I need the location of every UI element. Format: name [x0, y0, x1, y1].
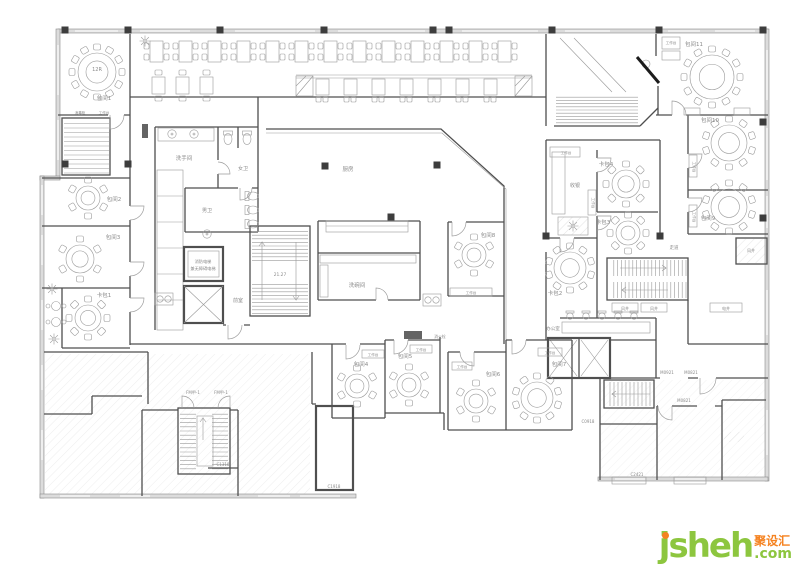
column — [322, 163, 329, 170]
chair — [454, 241, 463, 250]
chair — [554, 401, 562, 410]
room-label: 工作台 — [99, 110, 110, 115]
chair — [70, 300, 79, 309]
room-label: C0918 — [582, 419, 595, 424]
room-label: 工作台 — [692, 212, 697, 223]
chair — [69, 69, 75, 76]
chair — [97, 327, 106, 336]
column — [760, 215, 767, 222]
column — [430, 27, 437, 34]
chair — [251, 43, 256, 49]
chair — [367, 43, 372, 49]
chair — [463, 43, 468, 49]
booth-table — [344, 79, 357, 95]
round-table — [681, 46, 743, 108]
chair — [68, 184, 77, 193]
room-label: 前室 — [233, 297, 243, 304]
room-label: 包间2 — [107, 195, 122, 203]
basin — [190, 130, 198, 138]
stair-treads — [64, 124, 109, 174]
chair — [338, 54, 343, 60]
room-label: 12R — [92, 67, 102, 73]
room-label: 走道 — [670, 244, 679, 251]
chair — [739, 183, 748, 192]
chair — [485, 259, 494, 268]
room-label: FM甲-1 — [214, 390, 228, 395]
booth-table — [237, 41, 250, 62]
chair — [567, 287, 574, 293]
room-label: M0921 — [660, 370, 674, 375]
chair — [512, 43, 517, 49]
chair — [428, 97, 433, 102]
room-label: 包间1 — [97, 94, 112, 102]
chair — [512, 401, 520, 410]
chair — [709, 46, 716, 52]
chair — [739, 158, 748, 167]
chair — [519, 376, 528, 385]
chair — [435, 97, 440, 102]
chair — [389, 371, 398, 380]
chair — [347, 54, 352, 60]
chair — [485, 241, 494, 250]
plant-icon — [47, 284, 58, 295]
room-label: 工作台 — [368, 352, 379, 357]
chair — [748, 195, 756, 204]
chair — [636, 241, 645, 250]
chair — [732, 86, 741, 95]
chair — [611, 216, 620, 225]
room-label: 兼无障碍电梯 — [190, 265, 215, 272]
chair — [702, 146, 710, 155]
chair — [456, 97, 461, 102]
room-label: 消毒柜 — [75, 110, 86, 115]
basin — [203, 230, 211, 238]
chair — [400, 97, 405, 102]
chair — [344, 97, 349, 102]
room-label: 包间11 — [685, 40, 703, 48]
chair — [492, 43, 497, 49]
chair — [748, 210, 756, 219]
room-label: C1318 — [217, 462, 230, 467]
chair — [420, 371, 429, 380]
chair — [693, 97, 702, 106]
floor-plan-page: 12R包间1消毒柜工作台包间2包间3卡包1洗手间女卫男卫消防电梯兼无障碍电梯前室… — [0, 0, 800, 565]
room-label: 消防电梯 — [195, 258, 212, 265]
room-label: 包间9 — [701, 214, 716, 222]
chair — [231, 54, 236, 60]
column — [62, 27, 69, 34]
chair — [173, 54, 178, 60]
chair — [337, 372, 346, 381]
chair — [702, 195, 710, 204]
stair-treads — [252, 285, 308, 314]
chair — [487, 387, 496, 396]
chair — [425, 54, 430, 60]
chair — [203, 70, 210, 75]
chair — [702, 131, 710, 140]
chair — [552, 281, 561, 290]
chair — [347, 43, 352, 49]
chair — [94, 44, 101, 50]
chair — [396, 54, 401, 60]
toilet — [243, 131, 252, 145]
chair — [578, 246, 587, 255]
chair — [681, 74, 687, 81]
floor-plan-canvas: 12R包间1消毒柜工作台包间2包间3卡包1洗手间女卫男卫消防电梯兼无障碍电梯前室… — [0, 0, 800, 565]
room-label: 收银 — [570, 182, 580, 189]
chair — [603, 181, 609, 188]
room-label: 工作台 — [692, 162, 697, 173]
round-table — [68, 177, 108, 219]
chair — [396, 43, 401, 49]
booth-table — [316, 79, 329, 95]
chair — [463, 97, 468, 102]
chair — [85, 296, 92, 302]
chair — [114, 80, 123, 89]
stair-treads — [252, 232, 308, 261]
chair — [636, 216, 645, 225]
room-label: 风井 — [747, 247, 755, 253]
chair — [289, 54, 294, 60]
booth-table — [176, 77, 189, 94]
room-label: 工作台 — [457, 364, 468, 369]
chair — [473, 380, 480, 386]
round-table — [58, 236, 101, 282]
chair — [454, 54, 459, 60]
room-label: 工作台 — [561, 150, 572, 155]
chair — [289, 43, 294, 49]
chair — [71, 80, 80, 89]
chair — [104, 315, 110, 322]
chair — [93, 244, 102, 253]
round-table — [66, 296, 110, 340]
round-table — [702, 116, 756, 170]
chair — [732, 58, 741, 67]
room-label: 21.27 — [274, 272, 287, 278]
chair — [379, 97, 384, 102]
round-table — [454, 234, 494, 276]
booth-table — [372, 79, 385, 95]
room-label: 包间10 — [701, 116, 719, 124]
booth-table — [324, 41, 337, 62]
chair — [376, 54, 381, 60]
chair — [351, 97, 356, 102]
booth-table — [179, 41, 192, 62]
round-table — [545, 243, 595, 293]
chair — [739, 222, 748, 231]
chair — [318, 43, 323, 49]
chair — [260, 54, 265, 60]
round-table — [389, 364, 429, 406]
chair — [99, 184, 108, 193]
chair — [405, 54, 410, 60]
booth-table — [152, 77, 165, 94]
room-label: 厨房 — [342, 165, 354, 173]
chair — [97, 300, 106, 309]
chair — [487, 405, 496, 414]
chair — [354, 401, 361, 407]
lounge-table — [52, 302, 61, 311]
chair — [683, 86, 692, 95]
bench — [296, 75, 532, 78]
booth-table — [456, 79, 469, 95]
chair — [323, 97, 328, 102]
chair — [99, 202, 108, 211]
sink-counter — [158, 128, 214, 141]
toilet — [245, 192, 259, 201]
room-label: 洗碗间 — [349, 281, 366, 289]
room-label: FM甲-1 — [186, 390, 200, 395]
chair — [491, 97, 496, 102]
round-table — [512, 373, 562, 423]
round-table — [337, 365, 377, 407]
booth-table — [400, 79, 413, 95]
chair — [77, 276, 84, 282]
watermark-tld: .com — [754, 547, 792, 561]
booth-table — [484, 79, 497, 95]
room-label: 风井 — [621, 305, 629, 311]
chair — [58, 264, 67, 273]
chair — [710, 183, 719, 192]
chair — [726, 116, 733, 122]
chair — [473, 416, 480, 422]
chair — [251, 54, 256, 60]
chair — [318, 54, 323, 60]
room-label: 包间8 — [481, 231, 496, 239]
chair — [710, 158, 719, 167]
chair — [80, 89, 89, 98]
booth-table — [295, 41, 308, 62]
chair — [407, 97, 412, 102]
chair — [683, 58, 692, 67]
booth-table — [469, 41, 482, 62]
room-label: C1918 — [328, 484, 341, 489]
chair — [119, 69, 125, 76]
column — [388, 214, 395, 221]
chair — [471, 234, 478, 240]
toilet — [245, 220, 259, 229]
booth-table — [498, 41, 511, 62]
booth-table — [411, 41, 424, 62]
column — [760, 27, 767, 34]
chair — [368, 390, 377, 399]
chair — [721, 48, 730, 57]
chair — [280, 54, 285, 60]
chair — [367, 54, 372, 60]
chair — [726, 228, 733, 234]
chair — [71, 55, 80, 64]
chair — [434, 54, 439, 60]
chair — [456, 405, 465, 414]
room-label: 消火栓 — [434, 334, 446, 339]
room-label: 工作台 — [545, 350, 556, 355]
booth-table — [440, 41, 453, 62]
chair — [68, 202, 77, 211]
round-table — [607, 212, 649, 254]
room-label: C2421 — [631, 472, 644, 477]
room-label: 风井 — [650, 305, 658, 311]
chair — [179, 70, 186, 75]
room-label: M0821 — [677, 398, 691, 403]
chair — [625, 212, 632, 218]
chair — [85, 334, 92, 340]
column — [446, 27, 453, 34]
room-label: 男卫 — [202, 208, 212, 214]
chair — [636, 165, 645, 174]
chair — [611, 241, 620, 250]
booth-seating — [144, 41, 532, 102]
watermark-logo: jsheh 聚设汇 .com — [659, 532, 792, 561]
room-label: 卡包3 — [596, 218, 611, 226]
room-label: 卡包1 — [97, 291, 112, 299]
booth-table — [150, 41, 163, 62]
plant-icon — [49, 334, 60, 345]
chair — [202, 43, 207, 49]
column — [62, 161, 69, 168]
chair — [492, 54, 497, 60]
chair — [623, 201, 630, 207]
column — [760, 119, 767, 126]
basin — [168, 130, 176, 138]
chair — [144, 54, 149, 60]
chair — [164, 43, 169, 49]
chair — [721, 97, 730, 106]
booth-table — [382, 41, 395, 62]
chair — [726, 164, 733, 170]
chair — [260, 43, 265, 49]
chair — [309, 54, 314, 60]
lounge-table — [52, 318, 61, 327]
column — [125, 27, 132, 34]
chair — [80, 46, 89, 55]
chair — [483, 43, 488, 49]
room-label: 包间5 — [398, 352, 413, 360]
floor-symbol — [155, 293, 173, 305]
chair — [193, 54, 198, 60]
round-table — [456, 380, 496, 422]
chair — [389, 389, 398, 398]
column — [321, 27, 328, 34]
chair — [46, 304, 50, 308]
room-label: 办公室 — [546, 325, 560, 332]
chair — [337, 390, 346, 399]
chair — [173, 43, 178, 49]
column — [657, 233, 664, 240]
room-label: 包间3 — [106, 233, 121, 241]
watermark-brand: jsheh — [659, 532, 752, 561]
chair — [636, 194, 645, 203]
chair — [58, 244, 67, 253]
room-label: 卡包4 — [599, 160, 614, 168]
chair — [463, 54, 468, 60]
column — [549, 27, 556, 34]
chair — [434, 43, 439, 49]
chair — [70, 327, 79, 336]
chair — [425, 43, 430, 49]
chair — [316, 97, 321, 102]
chair — [202, 54, 207, 60]
room-label: 包间7 — [552, 360, 567, 368]
chair — [625, 248, 632, 254]
column — [125, 161, 132, 168]
chair — [748, 146, 756, 155]
chair — [737, 74, 743, 81]
chair — [748, 131, 756, 140]
room-label: 包间4 — [354, 360, 369, 368]
chair — [222, 43, 227, 49]
chair — [85, 213, 92, 219]
chair — [607, 194, 616, 203]
toilet — [245, 206, 259, 215]
chair — [309, 43, 314, 49]
floor-symbol — [423, 294, 441, 306]
chair — [231, 43, 236, 49]
chair — [46, 320, 50, 324]
room-label: 卡包2 — [548, 289, 563, 297]
chair — [587, 271, 595, 280]
chair — [739, 119, 748, 128]
column — [543, 233, 550, 240]
chair — [587, 257, 595, 266]
chair — [66, 315, 72, 322]
chair — [456, 387, 465, 396]
booth-table — [200, 77, 213, 94]
chair — [519, 411, 528, 420]
chair — [484, 97, 489, 102]
room-label: 包间6 — [486, 370, 501, 378]
chair — [454, 259, 463, 268]
room-label: 电井 — [722, 305, 730, 311]
chair — [534, 417, 541, 423]
chair — [607, 230, 613, 237]
chair — [155, 70, 162, 75]
watermark-dot-icon — [662, 532, 669, 539]
chair — [372, 97, 377, 102]
room-label: 女卫 — [238, 165, 248, 172]
chair — [623, 161, 630, 167]
booth-table — [353, 41, 366, 62]
chair — [164, 54, 169, 60]
room-label: 工作台 — [666, 40, 677, 45]
booth-table — [266, 41, 279, 62]
chair — [709, 102, 716, 108]
chair — [512, 54, 517, 60]
chair — [726, 180, 733, 186]
chair — [454, 43, 459, 49]
chair — [643, 230, 649, 237]
chair — [512, 387, 520, 396]
room-label: 工作台 — [416, 347, 427, 352]
chair — [406, 364, 413, 370]
chair — [693, 48, 702, 57]
chair — [420, 389, 429, 398]
chair — [483, 54, 488, 60]
column — [656, 27, 663, 34]
booth-table — [208, 41, 221, 62]
chair — [710, 222, 719, 231]
column — [434, 162, 441, 169]
chair — [93, 264, 102, 273]
chair — [471, 270, 478, 276]
round-table — [702, 180, 756, 234]
room-label: 工作台 — [591, 198, 596, 209]
chair — [578, 281, 587, 290]
chair — [105, 46, 114, 55]
chair — [545, 411, 554, 420]
chair — [554, 387, 562, 396]
toilet — [224, 131, 233, 145]
room-label: 洗手间 — [176, 154, 193, 162]
